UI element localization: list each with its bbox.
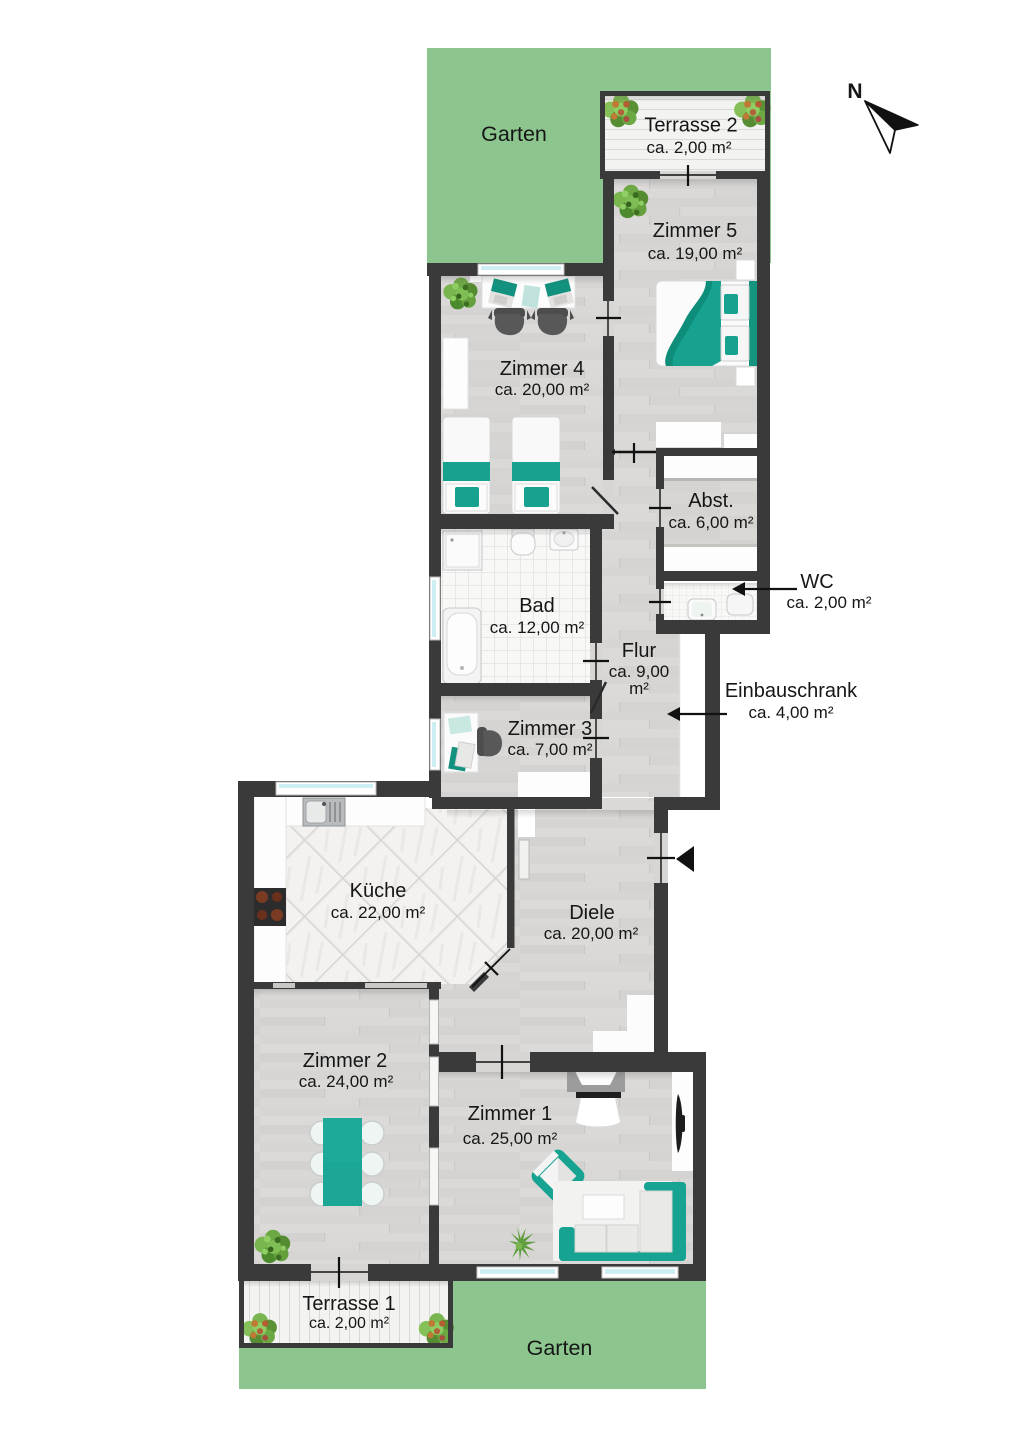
svg-text:ca. 25,00 m²: ca. 25,00 m² (463, 1129, 558, 1148)
svg-text:ca. 24,00 m²: ca. 24,00 m² (299, 1072, 394, 1091)
svg-text:Diele: Diele (569, 902, 615, 924)
svg-text:Flur: Flur (622, 640, 657, 662)
svg-text:ca. 2,00 m²: ca. 2,00 m² (646, 138, 731, 157)
svg-text:Terrasse 2: Terrasse 2 (644, 115, 737, 137)
svg-text:Zimmer 4: Zimmer 4 (500, 358, 584, 380)
svg-text:Zimmer 5: Zimmer 5 (653, 220, 737, 242)
svg-text:ca. 7,00 m²: ca. 7,00 m² (507, 740, 592, 759)
svg-text:Terrasse 1: Terrasse 1 (302, 1293, 395, 1315)
svg-text:Zimmer 2: Zimmer 2 (303, 1050, 387, 1072)
svg-text:Einbauschrank: Einbauschrank (725, 680, 858, 702)
svg-text:ca. 4,00 m²: ca. 4,00 m² (748, 703, 833, 722)
svg-text:Zimmer 1: Zimmer 1 (468, 1103, 552, 1125)
svg-text:ca. 20,00 m²: ca. 20,00 m² (544, 924, 639, 943)
svg-text:Küche: Küche (350, 880, 407, 902)
svg-text:ca. 2,00 m²: ca. 2,00 m² (309, 1315, 390, 1332)
svg-text:Abst.: Abst. (688, 490, 734, 512)
svg-text:ca. 22,00 m²: ca. 22,00 m² (331, 903, 426, 922)
svg-text:ca. 20,00 m²: ca. 20,00 m² (495, 380, 590, 399)
svg-text:N: N (847, 80, 862, 103)
svg-text:WC: WC (800, 571, 833, 593)
svg-text:Zimmer 3: Zimmer 3 (508, 718, 592, 740)
svg-text:ca. 19,00 m²: ca. 19,00 m² (648, 244, 743, 263)
svg-text:m²: m² (629, 679, 649, 698)
svg-text:Bad: Bad (519, 595, 555, 617)
svg-text:ca. 12,00 m²: ca. 12,00 m² (490, 618, 585, 637)
svg-text:ca. 6,00 m²: ca. 6,00 m² (668, 513, 753, 532)
svg-text:ca. 2,00 m²: ca. 2,00 m² (786, 593, 871, 612)
svg-text:Garten: Garten (527, 1336, 593, 1360)
svg-text:Garten: Garten (481, 122, 547, 146)
